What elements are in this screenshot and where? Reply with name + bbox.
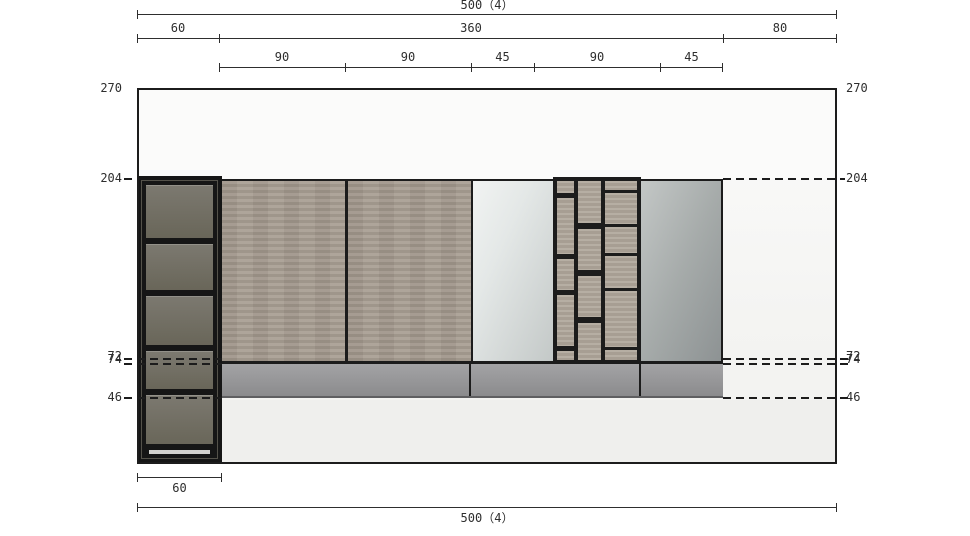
shelf-box [578, 276, 601, 317]
shelf-box [557, 181, 574, 193]
cabinet-elevation-drawing: 500（4） 60 360 80 90 90 45 90 45 270 204 … [0, 0, 970, 536]
dim-tick [836, 503, 837, 512]
cabinet-door-5 [146, 395, 213, 444]
shelf-box [605, 350, 637, 360]
dim-tick [471, 63, 472, 72]
cabinet-toe-strip [149, 450, 210, 454]
dashed-level-line-204-right [723, 178, 845, 180]
band-divider [639, 364, 641, 396]
dim-label-360: 360 [219, 22, 723, 35]
shelf-column-1 [557, 181, 574, 360]
cabinet-door-3 [146, 296, 213, 345]
tall-cabinet-inner-frame [141, 180, 218, 459]
dim-label-module-45a: 45 [471, 51, 534, 64]
dim-line-bottom-overall: 500（4） [137, 507, 837, 508]
glass-panel [641, 179, 723, 364]
shelf-box [557, 259, 574, 290]
dashed-level-line-74-right [723, 358, 849, 360]
shelf-column-3 [605, 181, 637, 360]
dim-line-top-overall: 500（4） [137, 14, 837, 15]
level-label-204-right: 204 [846, 172, 880, 185]
level-label-74-right: 74 [846, 353, 880, 366]
dim-label-bottom-overall: 500（4） [137, 512, 837, 525]
shelf-column-2 [578, 181, 601, 360]
floor-baseboard-strip [139, 400, 835, 462]
dim-label-module-90b: 90 [345, 51, 471, 64]
dim-line-bottom-cabinet: 60 [137, 477, 222, 478]
shelf-box [605, 193, 637, 224]
dashed-level-line-74-left [124, 358, 222, 360]
dim-tick [534, 63, 535, 72]
dim-line-top-sections: 60 360 80 [137, 38, 837, 39]
dashed-level-line-72-right [723, 363, 849, 365]
shelf-box [578, 181, 601, 223]
cabinet-door-1 [146, 185, 213, 238]
dim-tick [219, 34, 220, 43]
shelf-box [557, 295, 574, 345]
dim-label-module-45b: 45 [660, 51, 723, 64]
mirror-panel [471, 179, 553, 364]
shelf-box [557, 351, 574, 360]
dashed-level-line-46-right [723, 397, 849, 399]
dim-label-bottom-60: 60 [137, 482, 222, 495]
level-label-46-right: 46 [846, 391, 880, 404]
level-label-74-left: 74 [88, 353, 122, 366]
level-label-46-left: 46 [88, 391, 122, 404]
dim-label-module-90c: 90 [534, 51, 660, 64]
shelf-box [605, 227, 637, 253]
dim-tick [137, 503, 138, 512]
shelf-box [578, 229, 601, 269]
shelf-box [578, 323, 601, 360]
dashed-level-line-46-left [124, 397, 222, 399]
dim-tick [221, 473, 222, 482]
wood-panel-2 [348, 179, 471, 364]
cabinet-door-4 [146, 351, 213, 388]
shelf-unit [553, 177, 641, 364]
wall-upper-section [139, 90, 835, 179]
dim-tick [660, 63, 661, 72]
shelf-box [605, 181, 637, 190]
dim-tick [137, 34, 138, 43]
level-label-270-right: 270 [846, 82, 880, 95]
band-divider [469, 364, 471, 396]
tall-cabinet [137, 176, 222, 463]
dim-tick [836, 34, 837, 43]
dim-label-80: 80 [723, 22, 837, 35]
shelf-box [557, 198, 574, 254]
cabinet-door-2 [146, 244, 213, 290]
dim-label-overall-top: 500（4） [137, 0, 837, 12]
dim-line-top-modules: 90 90 45 90 45 [219, 67, 723, 68]
wood-panel-1 [222, 179, 345, 364]
counter-band [222, 361, 723, 398]
dashed-level-line-204-left [124, 178, 140, 180]
dim-tick [345, 63, 346, 72]
dim-tick [722, 63, 723, 72]
dim-label-module-90a: 90 [219, 51, 345, 64]
level-label-204-left: 204 [88, 172, 122, 185]
dim-tick [723, 34, 724, 43]
dim-label-60: 60 [137, 22, 219, 35]
shelf-box [605, 256, 637, 288]
level-label-270-left: 270 [88, 82, 122, 95]
shelf-box [605, 291, 637, 347]
dim-tick [219, 63, 220, 72]
dashed-level-line-72-left [124, 363, 222, 365]
dim-tick [137, 473, 138, 482]
